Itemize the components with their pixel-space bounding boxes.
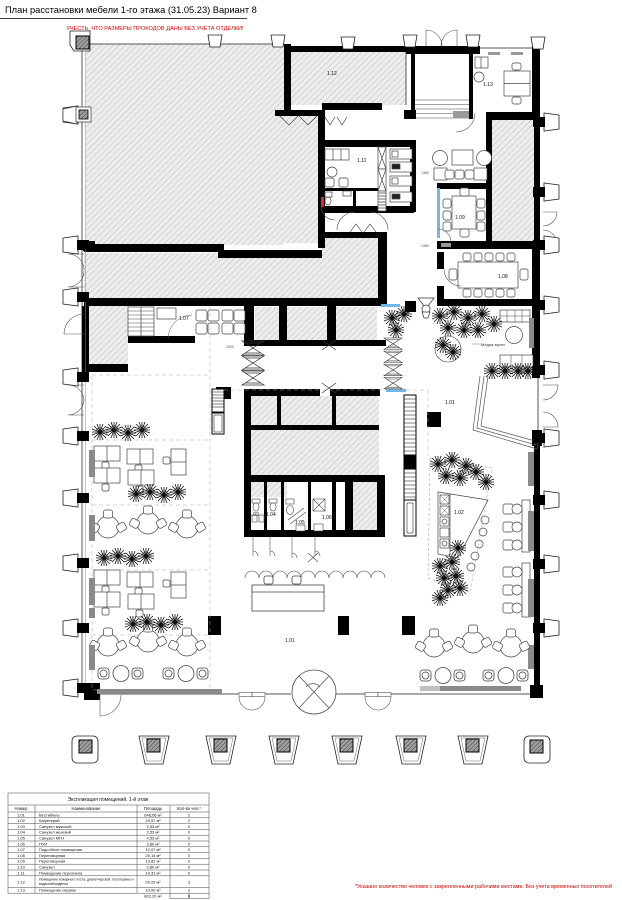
svg-text:1.01: 1.01 — [445, 400, 455, 406]
svg-text:1.13: 1.13 — [17, 888, 26, 893]
svg-text:Подсобное помещение: Подсобное помещение — [39, 847, 83, 852]
svg-text:12,07 м²: 12,07 м² — [145, 847, 161, 852]
svg-text:1500: 1500 — [226, 345, 234, 349]
svg-text:25,14 м²: 25,14 м² — [145, 853, 161, 858]
svg-text:648,06 м²: 648,06 м² — [144, 812, 162, 817]
svg-text:1.06: 1.06 — [322, 515, 332, 521]
svg-text:1380: 1380 — [421, 244, 429, 248]
svg-text:1.11: 1.11 — [357, 158, 367, 164]
svg-text:1.04: 1.04 — [17, 830, 26, 835]
svg-text:Помещение охраны: Помещение охраны — [39, 888, 76, 893]
svg-text:1.06: 1.06 — [17, 841, 26, 846]
svg-text:Экспликация помещений. 1-й эта: Экспликация помещений. 1-й этаж — [68, 796, 149, 803]
svg-text:1.08: 1.08 — [498, 274, 508, 280]
svg-text:1.01: 1.01 — [285, 638, 295, 644]
svg-text:План расстановки мебели 1-го э: План расстановки мебели 1-го этажа (31.0… — [5, 5, 257, 15]
svg-text:1.07: 1.07 — [179, 316, 189, 322]
svg-text:1.07: 1.07 — [17, 847, 26, 852]
svg-text:Помещение пожарного поста, дис: Помещение пожарного поста, диспетчерской… — [39, 877, 134, 881]
svg-text:*Указано количество человек с: *Указано количество человек с закрепленн… — [355, 883, 612, 890]
svg-text:13,82 м²: 13,82 м² — [145, 859, 161, 864]
svg-text:1.08: 1.08 — [17, 853, 26, 858]
svg-text:1.09: 1.09 — [455, 215, 465, 221]
svg-text:4,53 м²: 4,53 м² — [147, 836, 161, 841]
svg-text:Помещение персонала: Помещение персонала — [39, 870, 83, 875]
svg-text:1.12: 1.12 — [17, 879, 26, 884]
svg-text:2,80 м²: 2,80 м² — [147, 865, 161, 870]
svg-text:29,57 м²: 29,57 м² — [145, 818, 161, 823]
svg-text:1.13: 1.13 — [483, 82, 493, 88]
svg-text:802,20 м²: 802,20 м² — [144, 894, 162, 899]
svg-text:1.12: 1.12 — [327, 71, 337, 77]
svg-text:видеонаблюдения: видеонаблюдения — [39, 882, 68, 886]
svg-text:Переговорная: Переговорная — [39, 853, 65, 858]
svg-text:Санузел мужской: Санузел мужской — [39, 824, 71, 829]
svg-text:1500: 1500 — [388, 345, 396, 349]
svg-text:29,29 м²: 29,29 м² — [145, 879, 161, 884]
svg-text:Площадь: Площадь — [144, 806, 163, 811]
svg-text:Санузел женский: Санузел женский — [39, 830, 71, 835]
svg-text:1.01: 1.01 — [17, 812, 26, 817]
svg-text:1.04: 1.04 — [266, 512, 276, 518]
svg-text:14,31 м²: 14,31 м² — [145, 870, 161, 875]
svg-text:1.11: 1.11 — [17, 870, 25, 875]
svg-text:1.05: 1.05 — [17, 836, 26, 841]
svg-text:1.02: 1.02 — [454, 510, 464, 516]
svg-text:Санузел МГН: Санузел МГН — [39, 836, 64, 841]
svg-text:2,53 м²: 2,53 м² — [147, 830, 161, 835]
svg-text:Кол-во чел.*: Кол-во чел.* — [177, 806, 201, 811]
svg-text:Номер: Номер — [15, 806, 29, 811]
svg-text:УЧЕСТЬ, ЧТО РАЗМЕРЫ ПРОХОДОВ Д: УЧЕСТЬ, ЧТО РАЗМЕРЫ ПРОХОДОВ ДАНЫ БЕЗ УЧ… — [66, 26, 244, 32]
svg-text:Переговорная: Переговорная — [39, 859, 65, 864]
svg-text:1.09: 1.09 — [17, 859, 26, 864]
svg-text:10,00 м²: 10,00 м² — [145, 888, 161, 893]
svg-text:Вестибюль: Вестибюль — [39, 812, 60, 817]
svg-text:Наименование: Наименование — [71, 806, 101, 811]
svg-text:1.03: 1.03 — [17, 824, 26, 829]
svg-text:1.10: 1.10 — [17, 865, 26, 870]
svg-text:ПУИ: ПУИ — [39, 841, 47, 846]
svg-text:3,80 м²: 3,80 м² — [147, 841, 161, 846]
svg-text:Кафетерий: Кафетерий — [39, 818, 60, 823]
svg-text:1.05: 1.05 — [295, 520, 305, 526]
svg-text:Санузел: Санузел — [39, 865, 55, 870]
svg-text:1.02: 1.02 — [17, 818, 26, 823]
svg-text:1.03: 1.03 — [249, 512, 259, 518]
svg-text:1380: 1380 — [421, 171, 429, 175]
svg-text:Медиа экран: Медиа экран — [481, 342, 505, 347]
svg-text:2,53 м²: 2,53 м² — [147, 824, 161, 829]
